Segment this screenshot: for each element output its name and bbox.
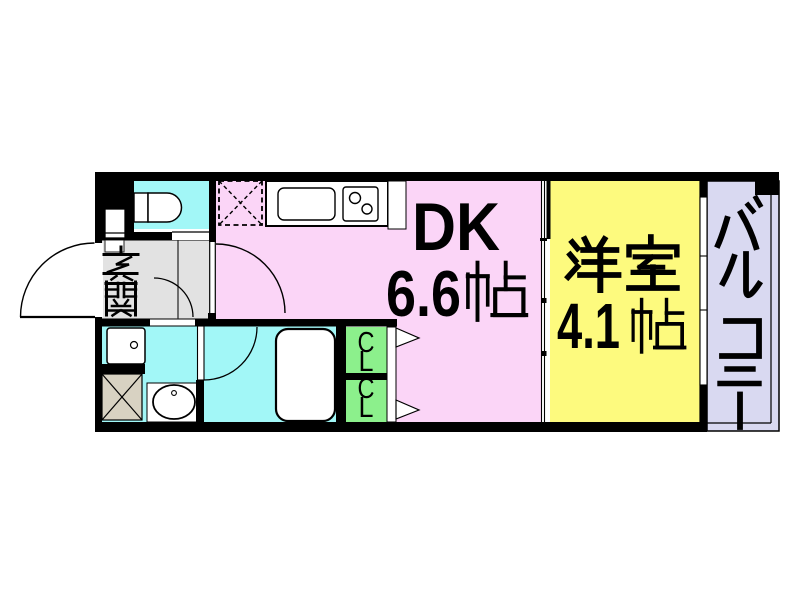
svg-text:4.1: 4.1	[557, 290, 620, 362]
svg-text:DK: DK	[412, 189, 500, 265]
svg-text:6.6: 6.6	[386, 257, 461, 330]
svg-text:L: L	[359, 392, 374, 424]
